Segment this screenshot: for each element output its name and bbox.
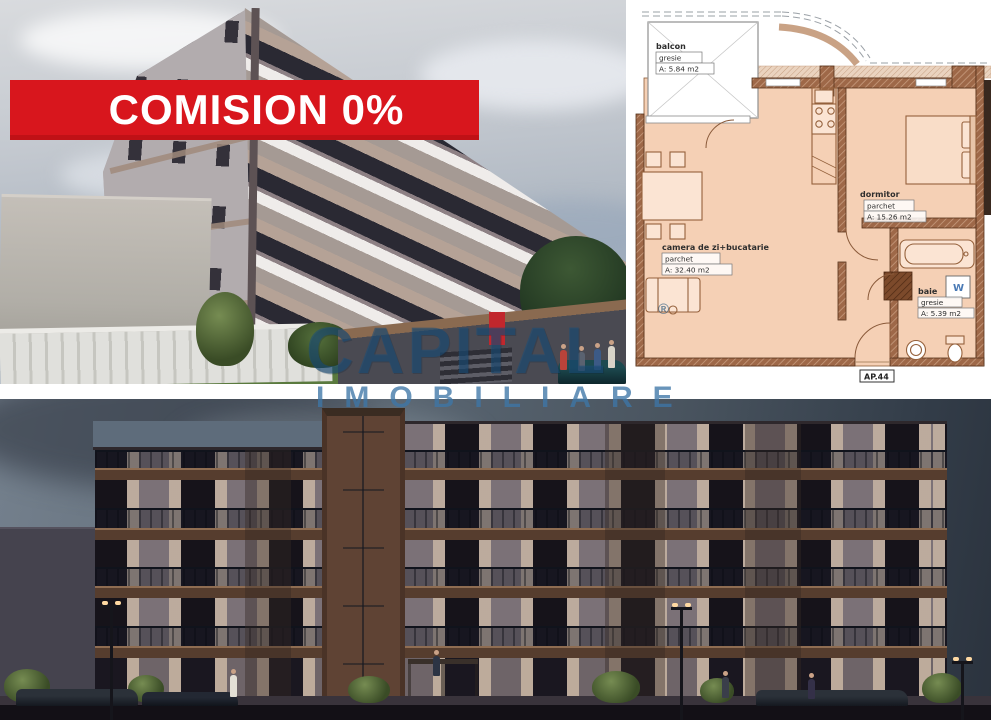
street-lamp <box>961 661 964 720</box>
living-area-value: A: 32.40 m2 <box>665 266 710 275</box>
bathroom-area-value: A: 5.39 m2 <box>921 309 961 318</box>
apartment-number: AP.44 <box>864 373 889 382</box>
structural-column <box>884 272 912 300</box>
apartment-floorplan: W balcon gresie A: 5.84 m2 camera de zi+… <box>634 0 991 384</box>
front-elevation-render <box>0 399 991 720</box>
street-lamp <box>680 607 683 720</box>
floor-slab <box>95 468 947 480</box>
parked-car <box>142 692 238 706</box>
road <box>0 705 991 720</box>
pedestrian <box>808 679 815 699</box>
pedestrian <box>230 675 237 697</box>
pedestrian <box>608 346 615 368</box>
pedestrian <box>560 350 567 370</box>
parked-car <box>558 360 626 384</box>
window <box>916 79 946 86</box>
real-estate-listing-collage: COMISION 0% <box>0 0 991 720</box>
street-lamp <box>110 605 113 720</box>
left-wing-parapet <box>93 421 345 450</box>
floorplan-drawing: W balcon gresie A: 5.84 m2 camera de zi+… <box>634 0 991 384</box>
balcony-railing <box>95 626 947 646</box>
floor-slab <box>95 586 947 598</box>
floor-slab <box>95 528 947 540</box>
bedroom-finish: parchet <box>867 202 895 211</box>
entrance-stairs <box>440 347 512 384</box>
floor-2-windows <box>95 598 947 646</box>
stairwell-tower <box>322 408 405 720</box>
facade-pier <box>245 424 291 720</box>
pedestrian <box>433 656 440 676</box>
pedestrian <box>594 349 601 370</box>
washer-label: W <box>953 283 964 294</box>
living-finish: parchet <box>665 255 693 264</box>
stairwell-glazing <box>343 416 384 720</box>
balcony-railing <box>95 567 947 586</box>
washing-machine: W <box>946 276 970 298</box>
white-fence <box>0 323 332 384</box>
apartment-block-facade <box>95 421 947 720</box>
bathroom-finish: gresie <box>921 298 944 307</box>
bush <box>348 676 390 703</box>
exterior-dark-band <box>984 80 991 215</box>
bush <box>922 673 962 703</box>
commission-banner: COMISION 0% <box>10 80 479 140</box>
bedroom-name: dormitor <box>860 190 900 199</box>
apartment-number-tag: AP.44 <box>860 370 894 382</box>
commission-banner-text: COMISION 0% <box>109 86 405 134</box>
pedestrian <box>578 352 585 371</box>
balcony-window <box>646 116 750 123</box>
bathroom-name: baie <box>918 287 938 296</box>
red-flag-banner <box>489 312 505 345</box>
window <box>766 79 800 86</box>
floor-slab <box>95 646 947 658</box>
balcony-name: balcon <box>656 42 686 51</box>
living-name: camera de zi+bucatarie <box>662 243 770 252</box>
balcony-finish: gresie <box>659 54 682 63</box>
balcony-area-value: A: 5.84 m2 <box>659 65 699 74</box>
tree <box>196 292 254 366</box>
pedestrian <box>722 677 729 698</box>
floor-4-windows <box>95 480 947 528</box>
balcony-railing <box>95 508 947 528</box>
exterior-corner-render: COMISION 0% <box>0 0 626 384</box>
parked-car <box>756 690 908 706</box>
floor-3-windows <box>95 540 947 586</box>
bedroom-area-value: A: 15.26 m2 <box>867 213 912 222</box>
bush <box>592 671 640 703</box>
parked-car <box>16 689 138 706</box>
facade-pier <box>745 424 801 720</box>
balcony-railing <box>95 450 947 468</box>
